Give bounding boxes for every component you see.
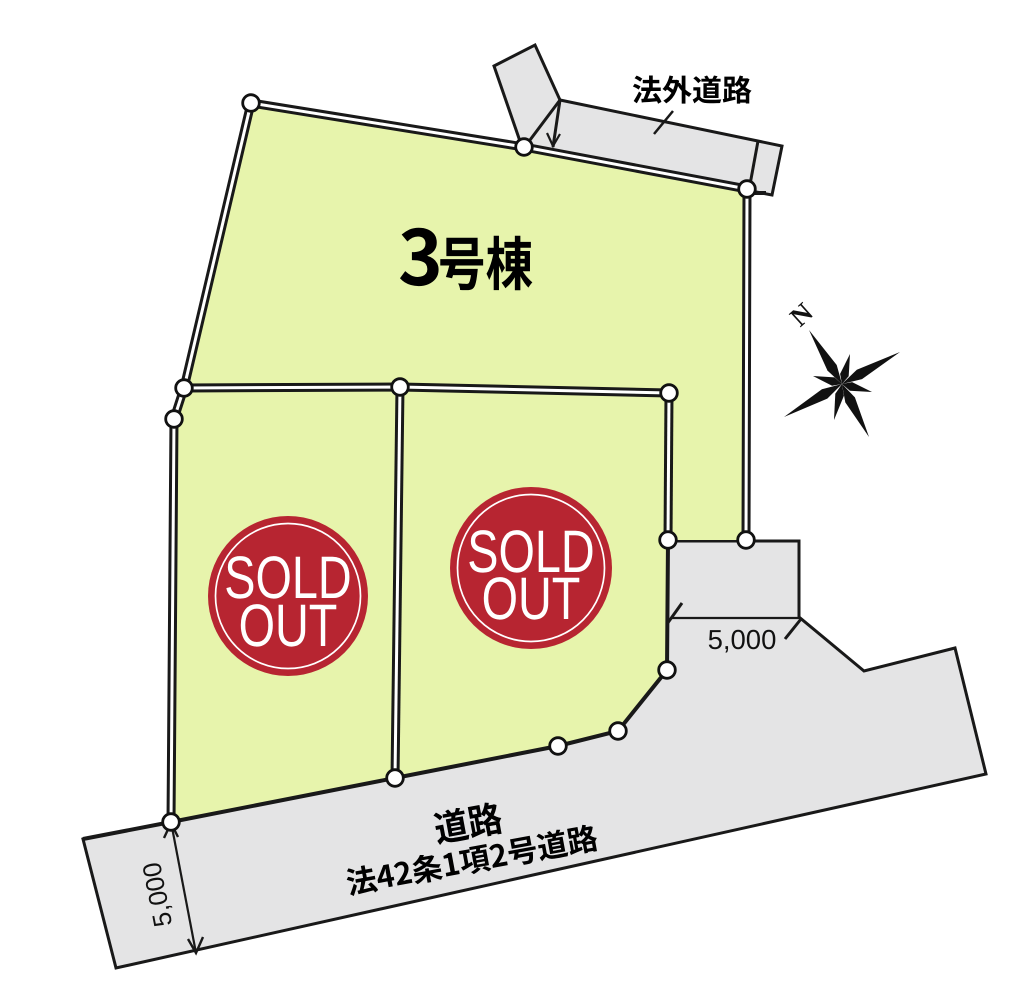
svg-text:OUT: OUT (482, 565, 581, 632)
svg-text:OUT: OUT (239, 592, 338, 659)
svg-text:5,000: 5,000 (708, 624, 777, 655)
